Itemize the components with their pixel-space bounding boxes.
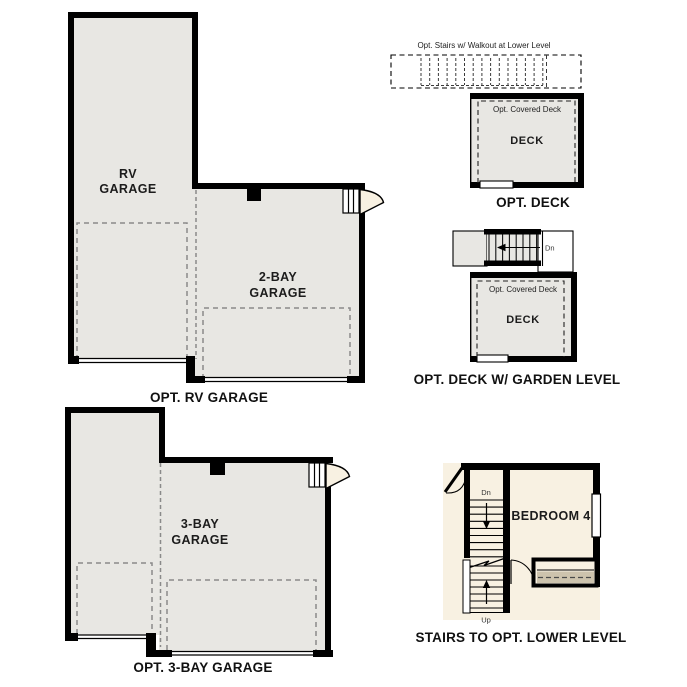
garden-stair-landing <box>453 231 487 266</box>
bedroom-closet <box>534 560 597 586</box>
garden-dn-label: Dn <box>545 244 555 253</box>
floorplan-sheet: RV GARAGE 2-BAY GARAGE OPT. RV GARAGE Op… <box>0 0 687 687</box>
rv-garage-caption: OPT. RV GARAGE <box>150 390 268 405</box>
rv-garage-label-line2: GARAGE <box>99 182 156 196</box>
deck-window <box>480 181 513 188</box>
deck-caption: OPT. DECK <box>496 195 570 210</box>
rv-garage-label-line1: RV <box>119 167 137 181</box>
garden-deck-room-label: DECK <box>506 314 540 326</box>
plan-opt-deck-garden: Dn Opt. Covered Deck DECK OPT. DECK W/ G… <box>414 229 621 387</box>
bedroom-label: BEDROOM 4 <box>511 509 590 523</box>
three-bay-caption: OPT. 3-BAY GARAGE <box>133 660 272 675</box>
garden-stair-corridor <box>538 231 573 272</box>
three-bay-label-line1: 3-BAY <box>181 517 220 531</box>
garden-stair-bottom-wall <box>484 261 541 267</box>
plan-stairs-lower-level: Dn Up BEDROOM 4 STAIRS TO O <box>416 463 627 645</box>
covered-deck-note: Opt. Covered Deck <box>493 105 562 114</box>
bedroom-window <box>592 494 601 537</box>
three-bay-right-floor <box>159 463 325 651</box>
deck-room-label: DECK <box>510 135 544 147</box>
opt-stairs-dashed-outline <box>391 55 581 88</box>
two-bay-entry-door <box>343 189 384 215</box>
garden-deck-caption: OPT. DECK W/ GARDEN LEVEL <box>414 372 621 387</box>
plan-opt-rv-garage: RV GARAGE 2-BAY GARAGE OPT. RV GARAGE <box>68 12 384 405</box>
two-bay-label-line1: 2-BAY <box>259 270 298 284</box>
stairs-dn-label: Dn <box>481 488 491 497</box>
garden-stair-top-wall <box>484 229 541 235</box>
garden-deck-window <box>477 355 508 362</box>
stairs-lower-caption: STAIRS TO OPT. LOWER LEVEL <box>416 630 627 645</box>
three-bay-entry-door <box>309 463 350 489</box>
plan-opt-deck: Opt. Stairs w/ Walkout at Lower Level Op… <box>391 41 584 210</box>
opt-stairs-note: Opt. Stairs w/ Walkout at Lower Level <box>417 41 550 50</box>
stairs-up-label: Up <box>481 616 491 625</box>
three-bay-label-line2: GARAGE <box>171 533 228 547</box>
garden-covered-deck-note: Opt. Covered Deck <box>489 285 558 294</box>
plan-opt-3bay-garage: 3-BAY GARAGE OPT. 3-BAY GARAGE <box>65 407 350 675</box>
stairs-up-rail <box>463 560 470 613</box>
floorplan-canvas: RV GARAGE 2-BAY GARAGE OPT. RV GARAGE Op… <box>0 0 687 687</box>
two-bay-label-line2: GARAGE <box>249 286 306 300</box>
three-bay-left-floor <box>71 413 159 635</box>
